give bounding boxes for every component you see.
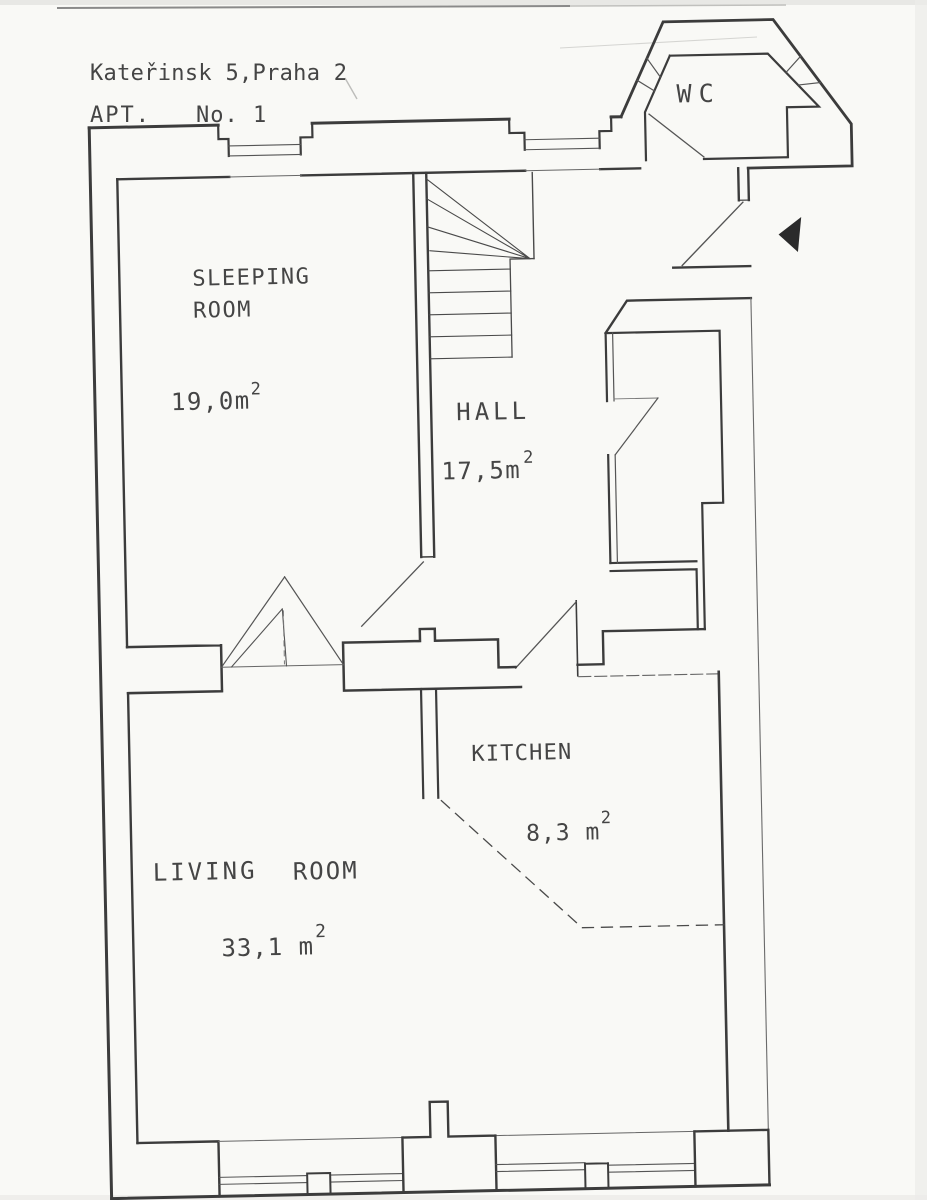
kitchen-opening-line — [579, 674, 719, 677]
address-title: Kateřinsk 5,Praha 2 — [90, 61, 347, 86]
wc-room — [619, 18, 852, 171]
window-glazing — [525, 138, 600, 150]
window-mullion-a — [307, 1173, 330, 1194]
room-area-kitchen-sup: 2 — [601, 808, 612, 828]
window-hall — [509, 117, 612, 171]
window-sleeping — [218, 123, 313, 177]
kitchen-walls — [437, 598, 728, 1137]
room-area-hall-sup: 2 — [523, 448, 534, 468]
closet — [606, 331, 726, 631]
closet-door-line — [614, 398, 658, 399]
stair-flight-edge — [510, 259, 536, 357]
closet-door-swing — [614, 398, 659, 455]
window-glazing-a — [219, 1174, 403, 1185]
window-sill — [525, 169, 600, 171]
room-area-hall: 17,5m — [441, 456, 521, 486]
room-area-living-sup: 2 — [315, 921, 326, 942]
kitchen-east-wall — [719, 672, 729, 1131]
wall-left-outer — [89, 128, 111, 1199]
room-label-living-2: ROOM — [293, 856, 359, 885]
scan-top-band — [0, 0, 927, 5]
wall-left-inner — [117, 179, 137, 1143]
wall-top-outer — [89, 117, 621, 128]
facade-corner-pier — [694, 1130, 769, 1187]
apt-label: APT. — [90, 103, 151, 128]
partition-sleeping-hall — [352, 173, 435, 626]
south-facade — [137, 1095, 770, 1198]
window-jambs — [509, 117, 612, 150]
door-threshold — [222, 665, 344, 668]
window-sill — [229, 175, 301, 177]
window-mullion-b — [585, 1163, 609, 1188]
stair-winders — [426, 177, 530, 261]
room-label-sleeping-2: ROOM — [193, 297, 252, 323]
room-labels: WC SLEEPING ROOM 19,0m 2 HALL 17,5m 2 KI… — [136, 79, 738, 964]
window-glazing — [229, 144, 301, 156]
wc-outer-wall — [619, 18, 852, 171]
entrance-arrow-icon — [778, 217, 802, 252]
room-label-wc: WC — [676, 79, 721, 109]
facade-center-pier — [402, 1101, 497, 1193]
wc-door-swing — [649, 113, 704, 158]
closet-outer — [606, 331, 726, 631]
window-jambs — [218, 123, 313, 156]
door-leaf-large — [220, 576, 344, 668]
room-area-living: 33,1 m — [221, 932, 314, 962]
south-wall-left — [127, 645, 222, 693]
stair-right-edge — [532, 173, 534, 259]
stair-treads — [428, 269, 512, 359]
room-label-hall: HALL — [456, 397, 530, 427]
entry-band-top — [673, 266, 750, 268]
entry-area — [602, 168, 768, 1133]
facade-left-pier — [137, 1141, 219, 1198]
kitchen-door-swing — [514, 602, 577, 668]
scan-right-edge — [915, 0, 927, 1200]
scan-top-line — [57, 6, 570, 8]
staircase — [426, 173, 536, 359]
south-wall-right — [343, 627, 521, 691]
closet-inner-left — [613, 333, 618, 563]
sleeping-door-swing — [360, 562, 424, 626]
kitchen-dashed-boundary — [441, 795, 724, 931]
kitchen-north-wall — [577, 629, 706, 665]
room-label-sleeping-1: SLEEPING — [192, 264, 310, 291]
floor-plan-scan: Kateřinsk 5,Praha 2 APT. No. 1 — [0, 0, 927, 1200]
room-label-kitchen: KITCHEN — [471, 740, 573, 767]
entry-wall — [738, 168, 749, 200]
hall-south-wall — [127, 627, 523, 804]
wc-inner-wall — [644, 53, 820, 161]
right-boundary-line — [751, 298, 768, 1130]
room-area-kitchen: 8,3 m — [526, 819, 601, 847]
scan-top-line-faint — [570, 5, 786, 6]
plan: WC SLEEPING ROOM 19,0m 2 HALL 17,5m 2 KI… — [87, 18, 873, 1199]
door-leaf-small — [230, 609, 286, 667]
closet-bottom — [610, 561, 697, 631]
entry-band-bottom — [605, 298, 752, 333]
partition-wall — [413, 173, 434, 557]
kitchen-living-stub — [421, 689, 438, 798]
title-block: Kateřinsk 5,Praha 2 APT. No. 1 — [90, 61, 347, 128]
room-area-sleeping: 19,0m — [171, 387, 251, 417]
room-area-sleeping-sup: 2 — [250, 379, 261, 399]
entry-door-swing — [681, 202, 744, 265]
double-door — [220, 576, 344, 668]
scan-scratch — [560, 37, 757, 48]
room-label-living-1: LIVING — [153, 857, 258, 887]
